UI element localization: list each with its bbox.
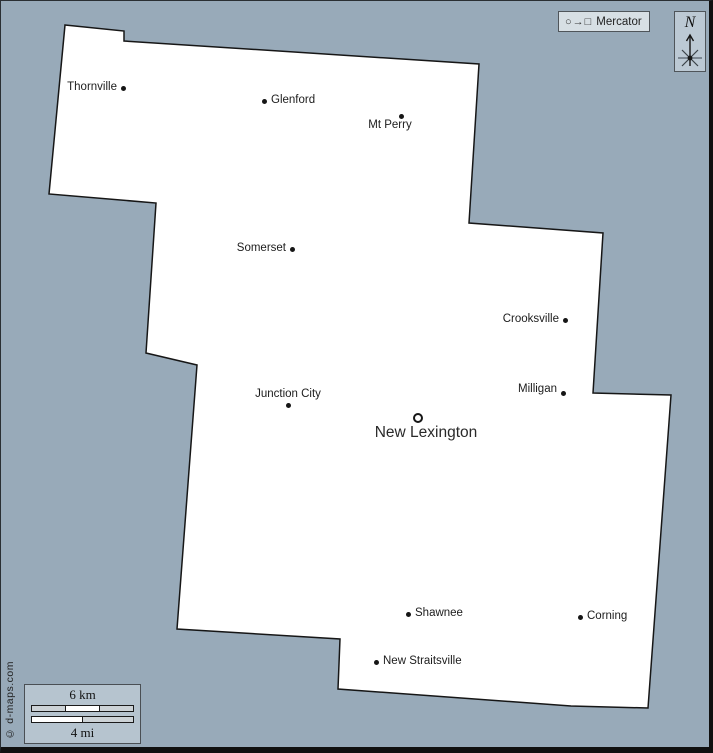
scale-bar: 6 km 4 mi — [24, 684, 141, 744]
county-outline — [49, 25, 671, 708]
city-label: Junction City — [255, 389, 321, 401]
map-canvas: Thornville Glenford Mt Perry Somerset Cr… — [0, 0, 713, 753]
city-label: Corning — [587, 611, 627, 623]
scale-km-bar — [31, 705, 134, 712]
city-label: Mt Perry — [368, 120, 411, 132]
county-seat-marker — [413, 413, 423, 423]
compass-rose: N — [674, 11, 706, 72]
city-dot — [121, 86, 126, 91]
city-dot — [290, 247, 295, 252]
city-label: Thornville — [67, 82, 117, 94]
projection-symbols-icon: ○→□ — [565, 16, 592, 28]
compass-star-icon — [676, 32, 704, 70]
city-dot — [262, 99, 267, 104]
city-dot — [399, 114, 404, 119]
city-dot — [374, 660, 379, 665]
city-label: Glenford — [271, 95, 315, 107]
city-dot — [561, 391, 566, 396]
compass-north-label: N — [685, 14, 696, 32]
city-label: New Straitsville — [383, 656, 462, 668]
projection-label: Mercator — [596, 16, 641, 28]
city-dot — [563, 318, 568, 323]
city-label: Crooksville — [503, 314, 559, 326]
city-label: Somerset — [237, 243, 286, 255]
scale-mi-label: 4 mi — [71, 725, 94, 741]
projection-legend: ○→□ Mercator — [558, 11, 650, 32]
city-label: Shawnee — [415, 608, 463, 620]
copyright-watermark: © d-maps.com — [4, 661, 16, 740]
county-shape — [1, 1, 713, 753]
county-seat-label: New Lexington — [375, 425, 478, 441]
city-dot — [578, 615, 583, 620]
scale-km-label: 6 km — [69, 687, 95, 703]
city-dot — [286, 403, 291, 408]
scale-mi-bar — [31, 716, 134, 723]
city-label: Milligan — [518, 384, 557, 396]
city-dot — [406, 612, 411, 617]
